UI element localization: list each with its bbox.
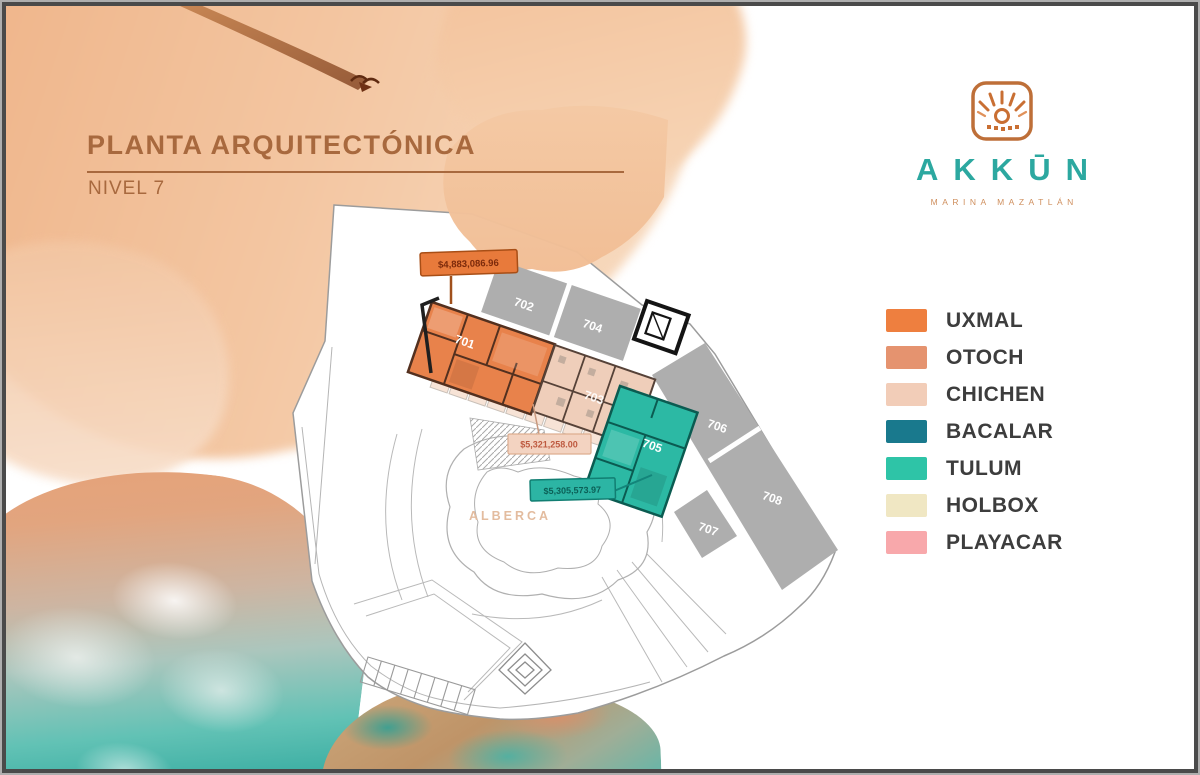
title-block: PLANTA ARQUITECTÓNICA (87, 130, 476, 161)
price-tag-tulum: $5,305,573.97 (530, 478, 616, 501)
title-underline (87, 171, 624, 173)
price-tag-chichen-value: $5,321,258.00 (520, 440, 578, 450)
unit-type-legend: UXMAL OTOCH CHICHEN BACALAR TULUM HOLBOX… (886, 302, 1063, 561)
legend-swatch-uxmal (886, 309, 927, 332)
legend-row-holbox: HOLBOX (886, 487, 1063, 524)
leader-chichen (533, 404, 539, 434)
unit-707-label: 707 (697, 519, 721, 539)
leader-tulum (614, 475, 652, 491)
legend-row-otoch: OTOCH (886, 339, 1063, 376)
unit-703-label: 703 (582, 388, 606, 408)
unit-707-block (674, 490, 737, 558)
legend-swatch-tulum (886, 457, 927, 480)
legend-label-bacalar: BACALAR (946, 420, 1053, 444)
unit-705-tulum: 705 (584, 386, 697, 517)
deck-paths (354, 429, 726, 700)
legend-label-otoch: OTOCH (946, 346, 1024, 370)
brand-tagline: MARINA MAZATLÁN (882, 197, 1122, 207)
legend-swatch-otoch (886, 346, 927, 369)
water-splotch (670, 624, 710, 670)
price-tag-tulum-value: $5,305,573.97 (543, 485, 601, 497)
brand-logo: AKKŪN MARINA MAZATLÁN (882, 80, 1122, 207)
legend-row-tulum: TULUM (886, 450, 1063, 487)
unit-708-label: 708 (761, 488, 785, 508)
unit-706-708-block (652, 343, 838, 590)
legend-label-holbox: HOLBOX (946, 494, 1039, 518)
price-tag-chichen: $5,321,258.00 (508, 434, 591, 454)
unit-704-label: 704 (581, 316, 605, 336)
legend-label-playacar: PLAYACAR (946, 531, 1063, 555)
unit-703-chichen: 703 (532, 345, 655, 446)
unit-706-label: 706 (706, 416, 730, 436)
legend-row-playacar: PLAYACAR (886, 524, 1063, 561)
legend-row-uxmal: UXMAL (886, 302, 1063, 339)
flyer-page: ALBERCA 702 704 706 708 707 (0, 0, 1200, 775)
legend-label-chichen: CHICHEN (946, 383, 1045, 407)
legend-label-uxmal: UXMAL (946, 309, 1023, 333)
legend-row-bacalar: BACALAR (886, 413, 1063, 450)
legend-swatch-playacar (886, 531, 927, 554)
page-title: PLANTA ARQUITECTÓNICA (87, 130, 476, 161)
beach-photo (0, 446, 386, 775)
legend-swatch-bacalar (886, 420, 927, 443)
hatched-deck (470, 418, 550, 470)
legend-swatch-chichen (886, 383, 927, 406)
brand-name: AKKŪN (882, 152, 1122, 188)
pool-label: ALBERCA (469, 509, 551, 523)
legend-row-chichen: CHICHEN (886, 376, 1063, 413)
legend-swatch-holbox (886, 494, 927, 517)
elevator-core (634, 301, 689, 353)
sun-logo-icon (969, 80, 1035, 144)
legend-label-tulum: TULUM (946, 457, 1022, 481)
unit-705-label: 705 (641, 436, 665, 456)
level-subtitle: NIVEL 7 (88, 178, 165, 200)
pool (446, 436, 654, 599)
beach-shoreline (318, 674, 662, 775)
